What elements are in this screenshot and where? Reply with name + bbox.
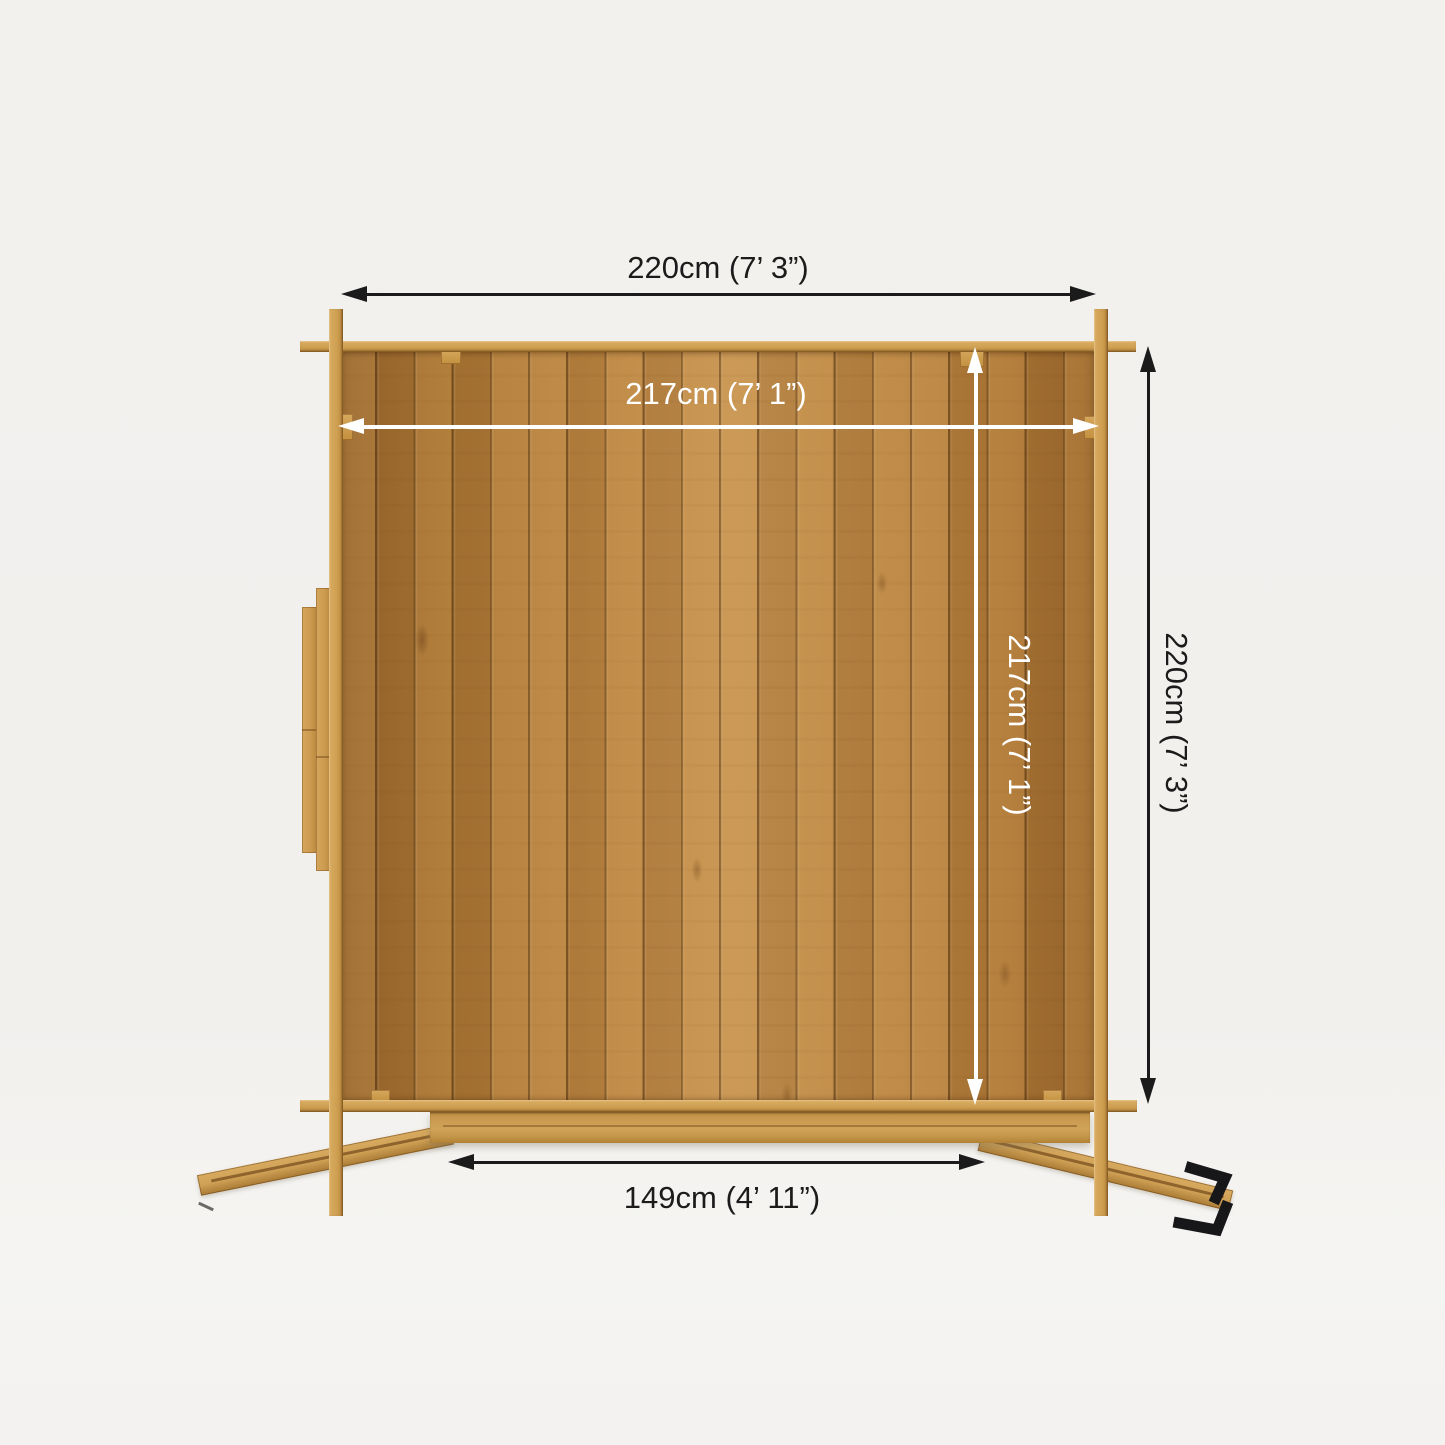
dim-label-external-depth: 220cm (7’ 3”) xyxy=(1158,632,1194,813)
dim-arrow-door-opening xyxy=(448,1154,985,1171)
dim-label-internal-depth: 217cm (7’ 1”) xyxy=(1001,634,1037,815)
window-sill-outer xyxy=(302,607,317,853)
dim-arrow-external-depth xyxy=(1140,346,1157,1104)
left-corner-log xyxy=(329,309,343,1216)
top-wall-log xyxy=(300,341,1136,352)
dim-label-internal-width: 217cm (7’ 1”) xyxy=(625,376,806,412)
dim-arrow-external-width xyxy=(341,286,1096,303)
dim-label-external-width: 220cm (7’ 3”) xyxy=(627,250,808,286)
dim-arrow-internal-depth xyxy=(967,347,984,1105)
bottom-wall-plate xyxy=(300,1100,1137,1112)
front-fascia-beam xyxy=(430,1112,1090,1143)
door-handles-icon xyxy=(1165,1150,1245,1240)
cabin-roof-panels xyxy=(337,350,1102,1102)
roof-batten xyxy=(441,350,461,364)
dim-arrow-internal-width xyxy=(338,418,1099,435)
dim-label-door-opening: 149cm (4’ 11”) xyxy=(624,1180,820,1216)
plan-view-diagram: 220cm (7’ 3”) 217cm (7’ 1”) 217cm (7’ 1”… xyxy=(0,0,1445,1445)
left-door-leaf xyxy=(197,1124,454,1196)
hinge-pin-icon xyxy=(198,1202,214,1211)
right-corner-log xyxy=(1094,309,1108,1216)
